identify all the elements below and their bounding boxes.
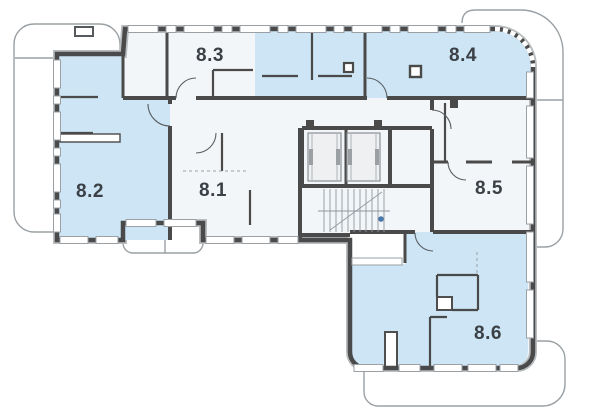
floor-plan: 8.1 8.2 8.3 8.4 8.5 8.6 bbox=[0, 0, 600, 417]
apartment-label-8-4[interactable]: 8.4 bbox=[449, 45, 477, 67]
apartment-label-8-1[interactable]: 8.1 bbox=[199, 180, 227, 202]
apartment-label-8-5[interactable]: 8.5 bbox=[475, 178, 503, 200]
apartment-8-4-region[interactable] bbox=[255, 29, 533, 98]
terrace-pillar bbox=[75, 27, 93, 36]
apartment-label-8-2[interactable]: 8.2 bbox=[76, 181, 104, 203]
apartment-label-8-3[interactable]: 8.3 bbox=[196, 45, 224, 67]
apartment-label-8-6[interactable]: 8.6 bbox=[474, 323, 502, 345]
floor-plan-drawing bbox=[0, 0, 600, 417]
entrance-marker bbox=[378, 216, 384, 222]
